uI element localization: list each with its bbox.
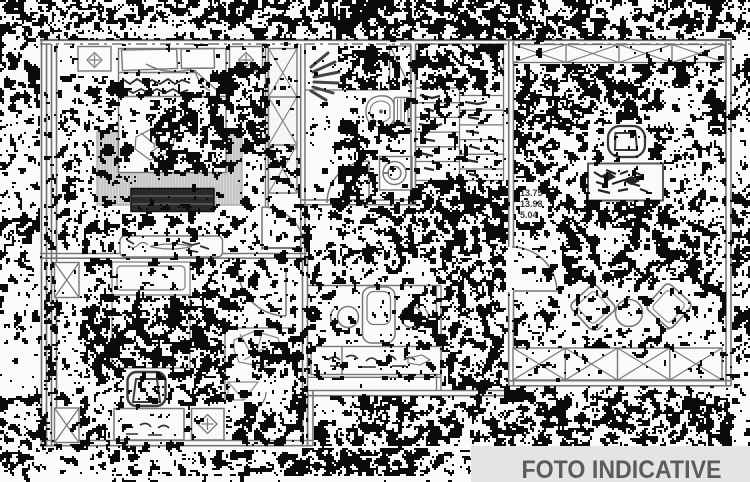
svg-text:5.04: 5.04 [520,210,538,220]
svg-text:FOTO INDICATIVE: FOTO INDICATIVE [522,456,722,482]
svg-text:13.98: 13.98 [520,199,543,209]
